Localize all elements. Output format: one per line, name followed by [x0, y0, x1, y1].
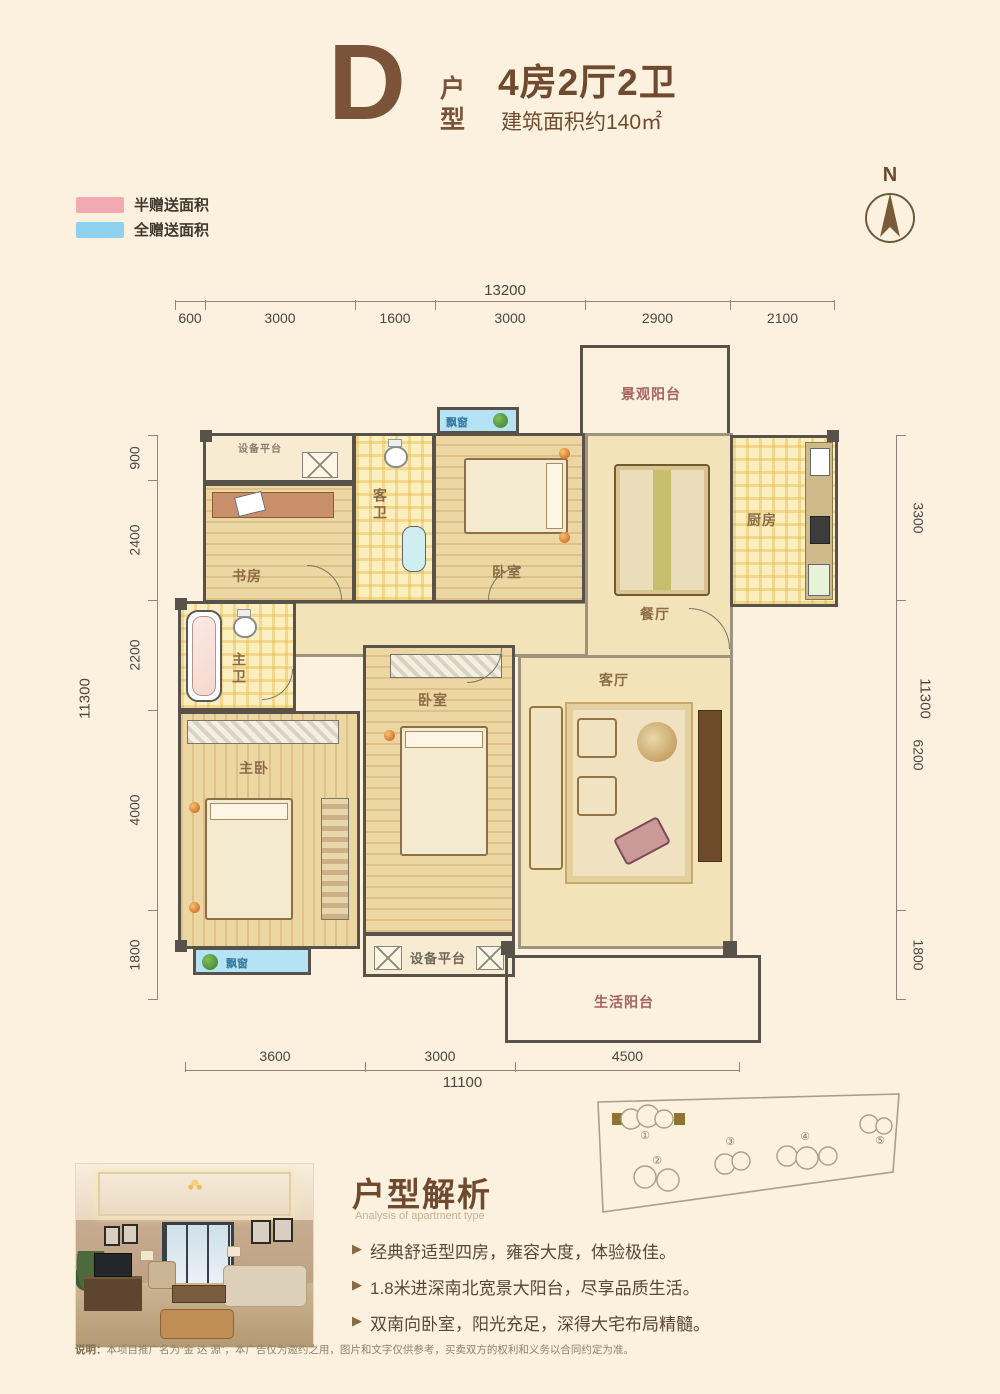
room-label: 设备平台 — [238, 440, 282, 455]
dim-value: 2400 — [127, 524, 143, 555]
type-word-top: 户 — [440, 74, 465, 105]
room-label: 卧室 — [418, 690, 448, 710]
type-letter: D — [328, 28, 406, 136]
door-swing — [262, 669, 293, 700]
equipment-box-icon — [302, 452, 338, 478]
sink-icon — [810, 448, 830, 476]
ottoman-icon — [160, 1309, 234, 1339]
interior-photo — [75, 1163, 314, 1348]
legend-item-full-gift: 全赠送面积 — [76, 217, 209, 242]
picture-frame-icon — [251, 1220, 271, 1244]
room-bay-window-top: 飘窗 — [437, 407, 519, 434]
stove-icon — [810, 516, 830, 544]
dim-value: 900 — [127, 446, 143, 469]
lamp-icon — [189, 802, 200, 813]
room-living: 客厅 — [518, 655, 733, 949]
room-kitchen: 厨房 — [730, 435, 838, 607]
flyer-canvas: D 户 型 4房2厅2卫 建筑面积约140㎡ 半赠送面积 全赠送面积 N 132… — [0, 0, 1000, 1394]
dim-value: 6200 — [911, 739, 927, 770]
bullet-icon: ▶ — [352, 1310, 362, 1332]
type-word-bottom: 型 — [440, 105, 465, 136]
entry-door-swing — [689, 608, 730, 649]
site-plan-sketch: ① ② ③ ④ ⑤ — [585, 1082, 915, 1227]
sofa-icon — [529, 706, 563, 870]
analysis-point: ▶1.8米进深南北宽景大阳台，尽享品质生活。 — [352, 1274, 772, 1299]
legend-item-half-gift: 半赠送面积 — [76, 192, 209, 217]
room-label: 飘窗 — [226, 955, 248, 971]
room-label: 餐厅 — [640, 604, 670, 624]
door-swing — [307, 565, 342, 600]
dim-value: 1800 — [127, 939, 143, 970]
room-label: 设备平台 — [410, 948, 466, 967]
equipment-box-icon — [476, 946, 504, 970]
legend-swatch-blue — [76, 222, 124, 238]
chandelier-icon — [188, 1176, 202, 1190]
bed-icon — [400, 726, 488, 856]
analysis-point-text: 双南向卧室，阳光充足，深得大宅布局精髓。 — [370, 1310, 710, 1335]
room-label: 飘窗 — [446, 414, 468, 430]
room-label: 生活阳台 — [594, 992, 654, 1012]
room-master-bedroom: 主卧 — [178, 711, 360, 949]
room-bedroom1: 卧室 — [433, 433, 585, 603]
room-guest-bath: 客卫 — [353, 433, 435, 603]
dim-left-total: 11300 — [77, 654, 94, 744]
site-number: ④ — [800, 1131, 810, 1143]
dim-top-total: 13200 — [175, 282, 835, 299]
dim-value: 4000 — [127, 794, 143, 825]
round-table-icon — [637, 722, 677, 762]
room-label: 主卫 — [229, 652, 249, 686]
room-label: 景观阳台 — [621, 384, 681, 404]
dim-line — [185, 1070, 740, 1071]
disclaimer-text: 本项目推广名为“金 达 源”，本广告仅为邀约之用，图片和文字仅供参考，买卖双方的… — [107, 1344, 634, 1356]
compass-north-label: N — [858, 164, 922, 187]
dining-table-icon — [614, 464, 710, 596]
room-label: 厨房 — [747, 510, 777, 530]
dimension-rail-top: 13200 600 3000 1600 3000 2900 2100 — [175, 282, 835, 326]
room-label: 客卫 — [370, 488, 390, 522]
room-label: 客厅 — [599, 670, 629, 690]
wall-post — [175, 598, 187, 610]
wardrobe-icon — [187, 720, 339, 744]
room-view-balcony: 景观阳台 — [580, 345, 730, 438]
floorplan: 景观阳台 设备平台 书房 客卫 飘窗 — [175, 345, 840, 1045]
bathtub-icon — [186, 610, 222, 702]
picture-frame-icon — [104, 1226, 120, 1246]
analysis-point-text: 经典舒适型四房，雍容大度，体验极佳。 — [370, 1238, 676, 1263]
toilet-icon — [384, 446, 408, 468]
dim-value: 600 — [178, 310, 201, 326]
picture-frame-icon — [273, 1218, 293, 1242]
wall-post — [827, 430, 839, 442]
analysis-title: 户型解析 — [352, 1168, 492, 1216]
bed-icon — [205, 798, 293, 920]
compass: N — [858, 164, 922, 250]
dim-value: 3000 — [494, 310, 525, 326]
wall-post — [501, 941, 515, 955]
legend-swatch-pink — [76, 197, 124, 213]
dim-value: 2900 — [642, 310, 673, 326]
disclaimer-label: 说明： — [75, 1344, 107, 1356]
analysis-points: ▶经典舒适型四房，雍容大度，体验极佳。 ▶1.8米进深南北宽景大阳台，尽享品质生… — [352, 1238, 772, 1346]
dim-value: 1800 — [911, 939, 927, 970]
plant-icon — [493, 413, 508, 428]
room-study: 书房 — [203, 483, 355, 603]
dresser-icon — [321, 798, 349, 920]
legend-label: 全赠送面积 — [134, 219, 209, 240]
dimension-rail-left: 900 2400 2200 4000 1800 — [112, 435, 158, 1000]
lamp-icon — [559, 448, 570, 459]
compass-icon — [861, 187, 919, 245]
room-bay-window-bottom: 飘窗 — [193, 947, 311, 975]
fridge-icon — [808, 564, 830, 596]
floor-lamp-icon — [227, 1246, 241, 1257]
site-number: ② — [652, 1155, 662, 1167]
desk-icon — [212, 492, 334, 518]
room-life-balcony: 生活阳台 — [505, 955, 761, 1043]
wall-post — [175, 940, 187, 952]
equipment-box-icon — [374, 946, 402, 970]
analysis-point: ▶双南向卧室，阳光充足，深得大宅布局精髓。 — [352, 1310, 772, 1335]
room-dining: 餐厅 — [585, 433, 733, 691]
wall-post — [723, 941, 737, 955]
armchair-icon — [577, 718, 617, 758]
bullet-icon: ▶ — [352, 1238, 362, 1260]
site-plan-icon: ① ② ③ ④ ⑤ — [585, 1082, 915, 1222]
lamp-icon — [559, 532, 570, 543]
floor-lamp-icon — [140, 1250, 154, 1261]
area-subtitle: 建筑面积约140㎡ — [501, 106, 662, 136]
room-label: 主卧 — [239, 758, 269, 778]
dim-value: 3300 — [911, 502, 927, 533]
type-word: 户 型 — [440, 74, 465, 137]
room-equipment-platform-bottom: 设备平台 — [363, 933, 515, 977]
disclaimer: 说明：本项目推广名为“金 达 源”，本广告仅为邀约之用，图片和文字仅供参考，买卖… — [75, 1342, 935, 1357]
coffee-table-icon — [577, 776, 617, 816]
site-number: ③ — [725, 1136, 735, 1148]
shower-icon — [402, 526, 426, 572]
bed-icon — [464, 458, 568, 534]
plant-icon — [202, 954, 218, 970]
analysis-point: ▶经典舒适型四房，雍容大度，体验极佳。 — [352, 1238, 772, 1263]
dim-value: 3000 — [424, 1048, 455, 1064]
room-label: 书房 — [232, 566, 262, 586]
site-number: ① — [640, 1130, 650, 1142]
tv-cabinet-icon — [698, 710, 722, 862]
dim-value: 2100 — [767, 310, 798, 326]
room-equipment-platform-top: 设备平台 — [203, 433, 355, 483]
coffee-table-icon — [172, 1285, 226, 1303]
tv-icon — [94, 1253, 132, 1277]
legend: 半赠送面积 全赠送面积 — [76, 192, 209, 242]
tv-cabinet-icon — [84, 1276, 142, 1311]
picture-frame-icon — [122, 1224, 138, 1244]
page-title: 4房2厅2卫 — [498, 52, 677, 106]
site-number: ⑤ — [875, 1135, 885, 1147]
analysis-subtitle: Analysis of apartment type — [355, 1210, 485, 1222]
dim-value: 3600 — [259, 1048, 290, 1064]
dim-value: 2200 — [127, 639, 143, 670]
lamp-icon — [384, 730, 395, 741]
sofa-icon — [223, 1265, 307, 1307]
legend-label: 半赠送面积 — [134, 194, 209, 215]
dim-value: 1600 — [379, 310, 410, 326]
lamp-icon — [189, 902, 200, 913]
dim-value: 4500 — [612, 1048, 643, 1064]
room-master-bath: 主卫 — [178, 601, 296, 711]
bullet-icon: ▶ — [352, 1274, 362, 1296]
dim-value: 3000 — [264, 310, 295, 326]
analysis-point-text: 1.8米进深南北宽景大阳台，尽享品质生活。 — [370, 1274, 700, 1299]
dimension-rail-right: 3300 6200 1800 — [896, 435, 942, 1000]
toilet-icon — [233, 616, 257, 638]
wall-post — [200, 430, 212, 442]
room-bedroom2: 卧室 — [363, 645, 515, 935]
